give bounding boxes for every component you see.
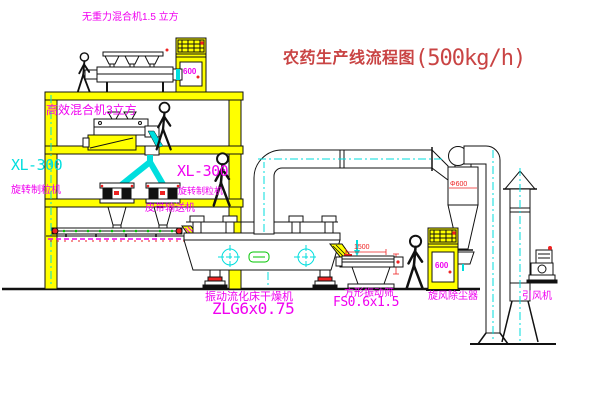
weightless-mixer-drawing	[85, 49, 182, 93]
label-weightless-mixer: 无重力混合机1.5 立方	[82, 12, 179, 23]
belt-conveyor-drawing	[52, 226, 201, 240]
worker-figure	[157, 103, 171, 150]
cabinet-upper-tag: 600	[183, 67, 197, 76]
label-granulator-right-model: XL-300	[177, 163, 228, 180]
exhaust-stack-drawing	[502, 168, 538, 342]
exhaust-duct	[254, 147, 448, 234]
machine-cabinet-upper	[176, 38, 206, 92]
label-granulator-left-model: XL-300	[11, 157, 62, 174]
label-vibrating-screen-model: FS0.6x1.5	[333, 296, 399, 310]
cabinet-lower-tag: 600	[435, 261, 449, 270]
label-granulator-left: 旋转制粒机	[11, 185, 61, 196]
label-induced-draft-fan: 引风机	[522, 291, 552, 302]
cad-process-flow-drawing: 600 600 Φ600 1500 农药生产线流程图 (500kg/h) 无重力…	[0, 0, 600, 403]
worker-figure	[407, 236, 423, 289]
label-granulator-right: 旋转制粒机	[178, 187, 223, 197]
drawing-title: 农药生产线流程图 (500kg/h)	[283, 44, 525, 71]
machine-cabinet-lower	[426, 228, 460, 290]
label-belt-conveyor: 皮带输送机	[145, 203, 195, 214]
high-efficiency-mixer-drawing	[83, 112, 163, 155]
drawing-title-capacity: (500kg/h)	[415, 46, 525, 71]
label-cyclone: 旋风除尘器	[428, 291, 478, 302]
cyclone-diameter-dim: Φ600	[450, 181, 467, 188]
label-high-efficiency-mixer: 高效混合机3立方	[46, 104, 137, 117]
induced-draft-fan-drawing	[527, 246, 557, 283]
y-chute	[120, 155, 164, 186]
drawing-title-text: 农药生产线流程图	[283, 44, 415, 71]
label-fluid-bed-dryer-model: ZLG6x0.75	[212, 300, 294, 318]
screen-width-dim: 1500	[354, 244, 370, 251]
